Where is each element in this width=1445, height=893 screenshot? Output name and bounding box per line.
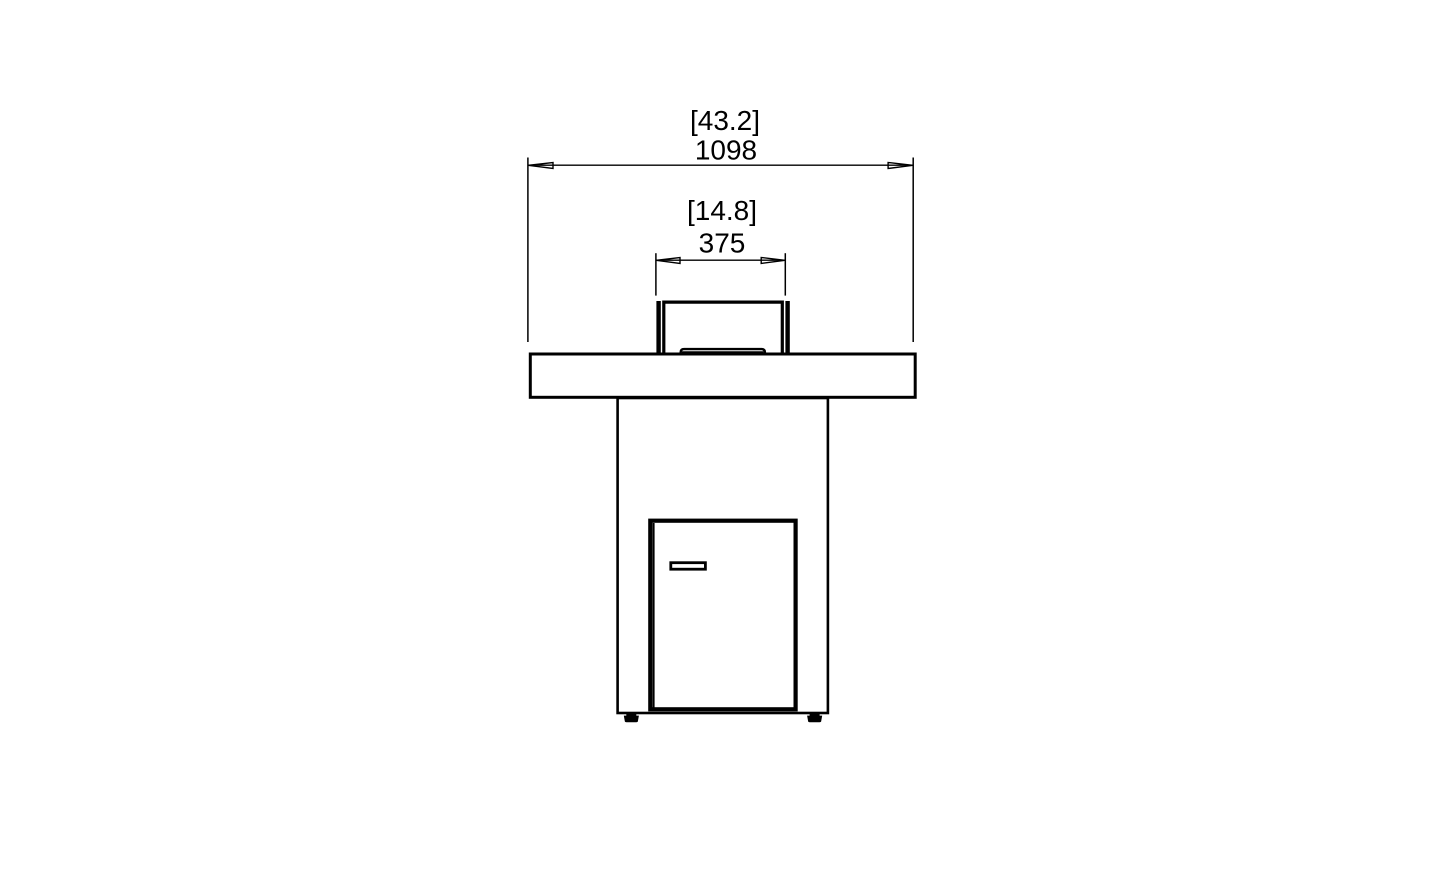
svg-text:[43.2]: [43.2] [690,105,760,136]
svg-text:[14.8]: [14.8] [687,195,757,226]
svg-text:375: 375 [699,228,746,259]
svg-text:1098: 1098 [695,135,757,166]
